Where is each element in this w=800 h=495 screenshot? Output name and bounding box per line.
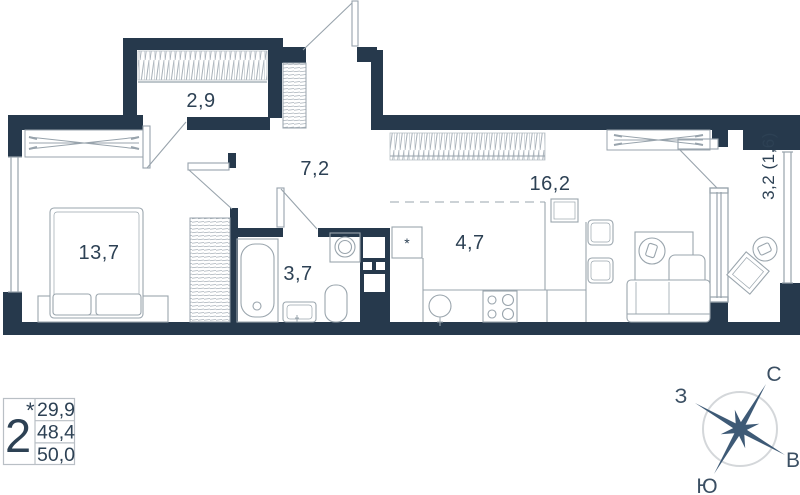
wall-bedroom-top xyxy=(8,115,143,130)
kitchen-unit-mark: * xyxy=(404,235,410,251)
legend-asterisk: * xyxy=(26,398,35,423)
dining-table xyxy=(551,199,578,222)
wall-wardrobe-top xyxy=(123,38,283,50)
pillow xyxy=(53,294,91,315)
wall-entry-right xyxy=(371,50,383,118)
bed xyxy=(38,208,168,322)
room-label-living: 16,2 xyxy=(530,173,571,195)
wall-left-upper xyxy=(8,115,22,157)
bathtub xyxy=(237,239,278,322)
bedroom-shelving xyxy=(190,218,230,322)
wardrobe-door xyxy=(143,122,186,168)
compass-rose: С В Ю З xyxy=(675,363,800,495)
balcony-outer-window xyxy=(782,152,793,283)
round-chair xyxy=(639,238,665,264)
wall-wardrobe-bottom xyxy=(187,117,270,130)
room-label-hall: 7,2 xyxy=(300,158,329,180)
shaft-vent-small-2 xyxy=(376,262,385,270)
wall-bath-top-left xyxy=(238,228,283,237)
kitchen-sink xyxy=(429,295,451,326)
wall-top-main xyxy=(371,115,800,130)
room-label-bathroom: 3,7 xyxy=(283,263,312,285)
balcony-furniture xyxy=(727,237,777,294)
hall-shelving xyxy=(283,63,306,128)
bedroom-sliding-closet xyxy=(25,130,143,157)
hall-wardrobe xyxy=(390,133,545,160)
shaft-vent-small-1 xyxy=(363,262,372,270)
shaft-vent-mid xyxy=(364,274,385,292)
legend-table: 2 * 29,9 48,4 50,0 xyxy=(4,398,76,466)
wall-bottom xyxy=(8,322,780,335)
room-label-kitchen: 4,7 xyxy=(455,232,484,254)
room-label-wardrobe: 2,9 xyxy=(186,90,215,112)
legend-total-area: 50,0 xyxy=(37,444,75,466)
living-furniture xyxy=(551,199,710,322)
wall-notch xyxy=(728,130,743,147)
room-label-bedroom: 13,7 xyxy=(79,242,120,264)
legend-living-area: 29,9 xyxy=(37,399,75,421)
floor-plan-drawing: 2,9 7,2 13,7 3,7 4,7 16,2 3,2 (1,6) * 2 … xyxy=(0,0,800,495)
compass-west: З xyxy=(675,385,688,408)
compass-east: В xyxy=(786,449,800,472)
balcony-round-chair xyxy=(753,237,777,261)
wall-balcony-stub-bottom xyxy=(708,302,728,335)
pillow xyxy=(96,294,141,315)
room-label-balcony: 3,2 (1,6) xyxy=(759,132,778,200)
wall-balcony-right-lower xyxy=(780,283,800,335)
compass-star xyxy=(695,384,785,474)
legend-area-without-balcony: 48,4 xyxy=(37,422,75,444)
entrance-door xyxy=(303,1,358,50)
balcony-glazing xyxy=(710,188,728,302)
sofa xyxy=(627,280,710,322)
washing-machine xyxy=(330,233,360,262)
bedroom-window xyxy=(8,157,22,292)
floor-plan-page: 2,9 7,2 13,7 3,7 4,7 16,2 3,2 (1,6) * 2 … xyxy=(0,0,800,495)
bathroom-door xyxy=(277,188,317,229)
compass-north: С xyxy=(766,363,781,386)
balcony-door xyxy=(678,139,718,188)
wall-entry-left xyxy=(278,47,306,63)
stove xyxy=(483,291,517,322)
water-heater xyxy=(325,285,347,322)
wardrobe-hanger-rail xyxy=(138,51,267,82)
compass-south: Ю xyxy=(696,475,717,495)
bedroom-door xyxy=(188,163,232,209)
bathroom-sink xyxy=(283,302,316,322)
shaft-vent-large xyxy=(363,237,385,258)
